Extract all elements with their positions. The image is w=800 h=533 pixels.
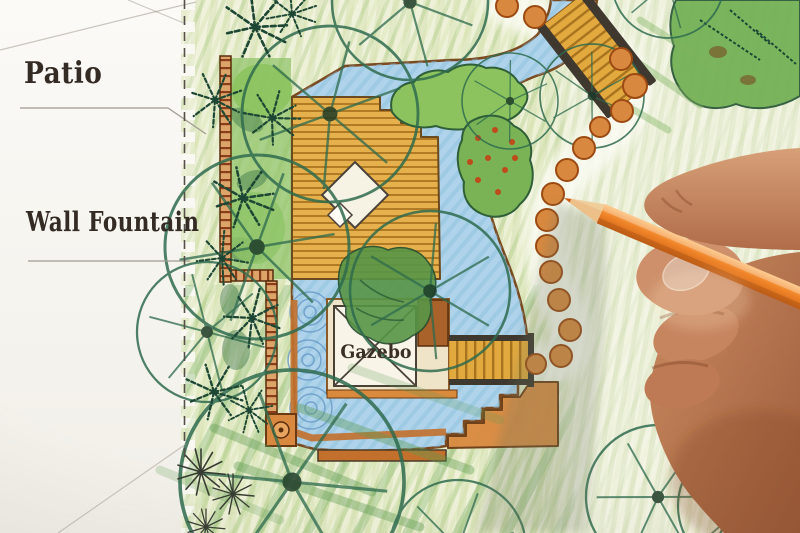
label-patio: Patio [24,56,102,91]
label-wall-fountain: Wall Fountain [26,207,199,238]
pointed-stepping-stone [542,183,564,205]
landscape-plan-drawing [0,0,800,533]
label-gazebo: Gazebo [337,341,414,363]
photo-of-landscape-design-plan: Patio Wall Fountain Gazebo [0,0,800,533]
patio-leader-line [20,108,206,134]
